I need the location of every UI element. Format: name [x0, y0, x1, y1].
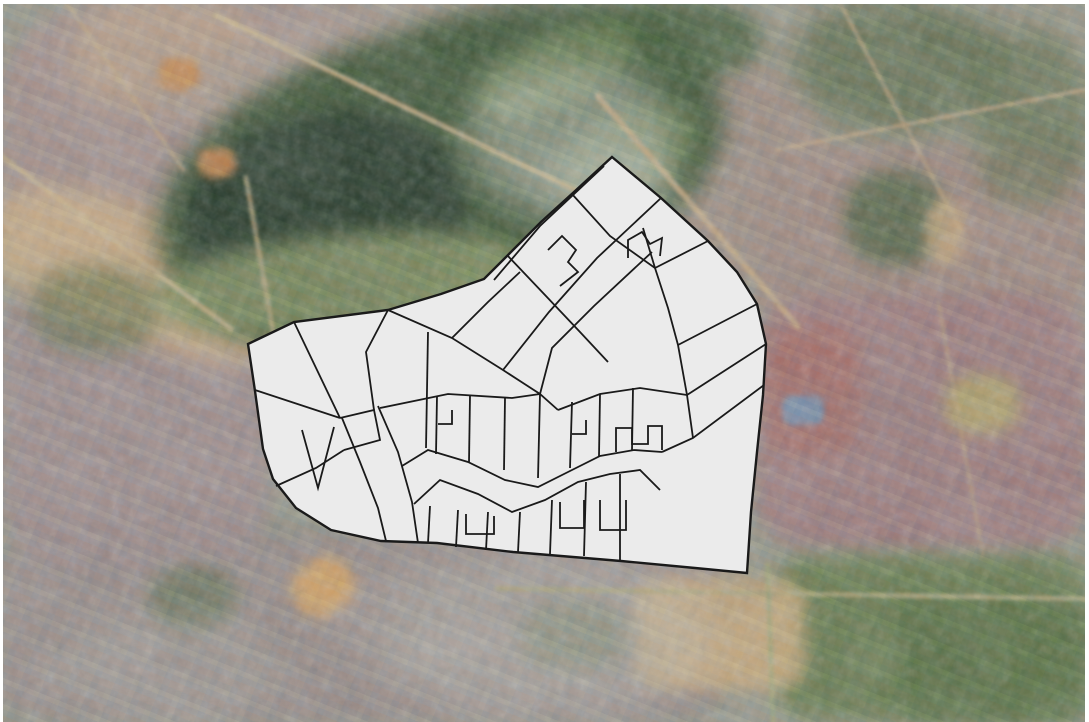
parcel-overlay — [0, 0, 1089, 722]
parcel-line — [436, 396, 437, 454]
parcel-line — [504, 398, 505, 470]
parcel-line — [469, 396, 470, 462]
map-canvas[interactable] — [0, 0, 1089, 722]
parcel-line — [599, 394, 600, 456]
screenshot-frame — [0, 0, 1089, 722]
